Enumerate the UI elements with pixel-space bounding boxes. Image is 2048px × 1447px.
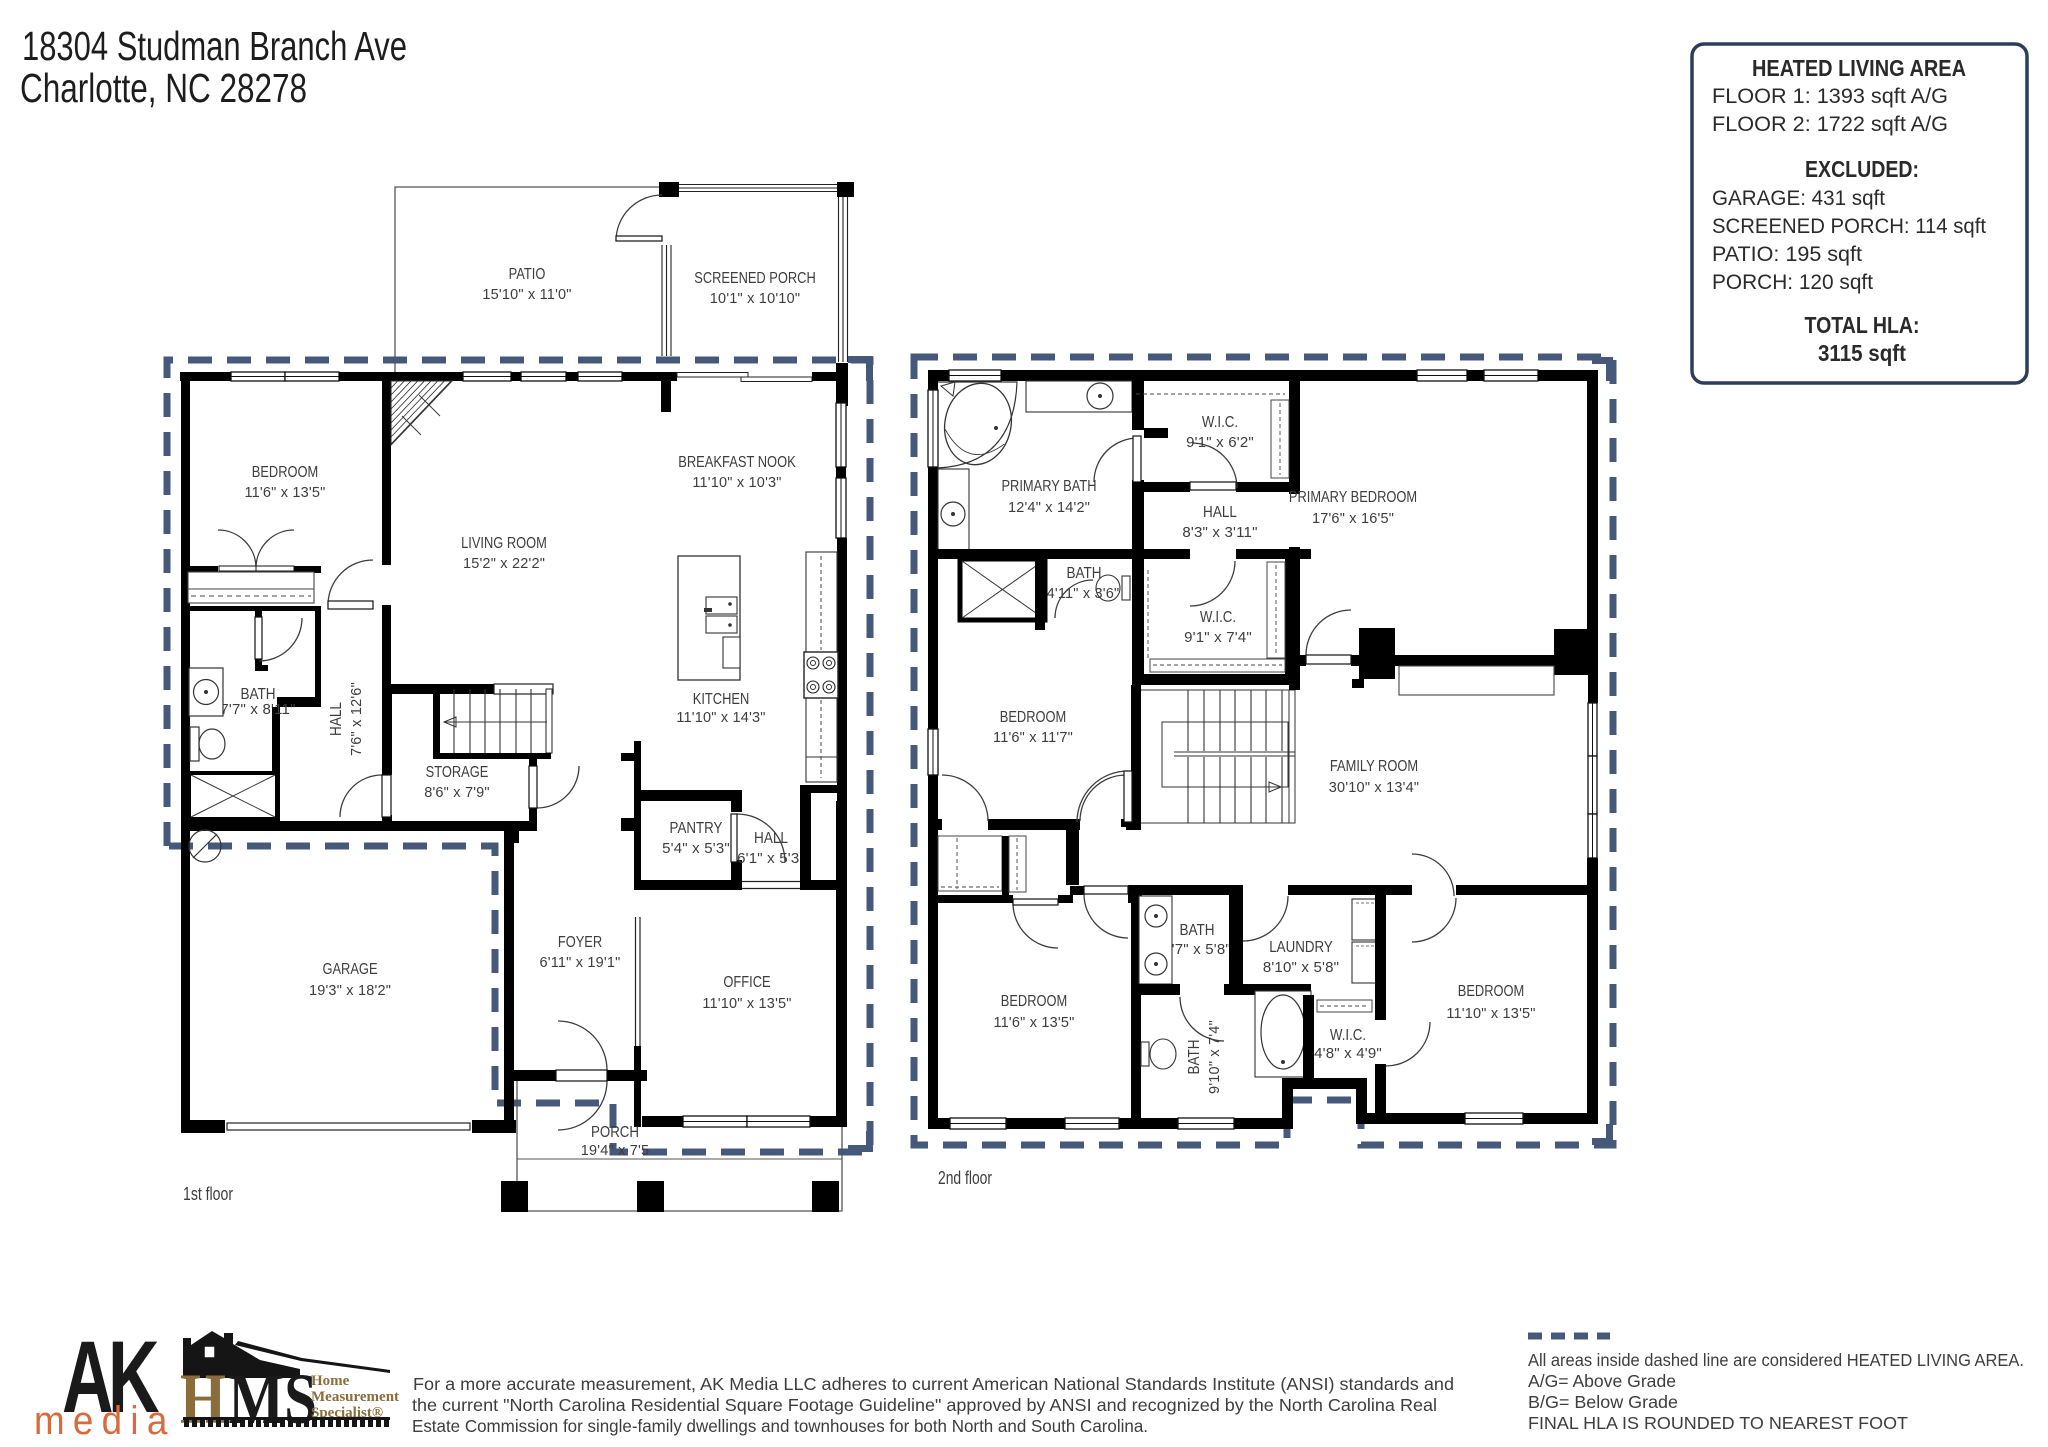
svg-text:Home: Home (311, 1373, 350, 1389)
svg-text:11'10" x 14'3": 11'10" x 14'3" (676, 710, 765, 726)
svg-text:All areas inside dashed line a: All areas inside dashed line are conside… (1528, 1350, 2024, 1370)
svg-text:W.I.C.: W.I.C. (1202, 414, 1238, 431)
svg-text:4'8" x 4'9": 4'8" x 4'9" (1314, 1045, 1382, 1062)
svg-text:HALL: HALL (1203, 504, 1237, 521)
svg-text:BATH: BATH (1179, 922, 1214, 939)
svg-text:9'10" x 7'4": 9'10" x 7'4" (1207, 1020, 1223, 1094)
svg-text:PORCH: PORCH (591, 1124, 639, 1141)
svg-text:SCREENED PORCH: SCREENED PORCH (694, 270, 816, 287)
svg-text:FLOOR 1: 1393 sqft A/G: FLOOR 1: 1393 sqft A/G (1712, 84, 1948, 108)
svg-text:GARAGE: 431 sqft: GARAGE: 431 sqft (1712, 186, 1885, 210)
svg-text:7'7" x 8'11": 7'7" x 8'11" (220, 701, 295, 718)
svg-text:PATIO: PATIO (509, 266, 546, 283)
svg-text:15'10" x 11'0": 15'10" x 11'0" (482, 287, 571, 303)
svg-text:8'3" x 3'11": 8'3" x 3'11" (1182, 524, 1257, 541)
svg-text:3115 sqft: 3115 sqft (1818, 340, 1906, 366)
svg-text:KITCHEN: KITCHEN (693, 691, 750, 708)
svg-text:FAMILY ROOM: FAMILY ROOM (1330, 758, 1418, 775)
svg-text:19'3" x 18'2": 19'3" x 18'2" (309, 983, 391, 999)
svg-text:FINAL HLA IS ROUNDED TO NEARES: FINAL HLA IS ROUNDED TO NEAREST FOOT (1528, 1413, 1909, 1433)
svg-text:8'10" x 5'8": 8'10" x 5'8" (1263, 959, 1339, 976)
svg-text:11'6" x 13'5": 11'6" x 13'5" (244, 485, 325, 501)
svg-text:BREAKFAST NOOK: BREAKFAST NOOK (678, 454, 796, 471)
svg-text:W.I.C.: W.I.C. (1330, 1027, 1366, 1044)
svg-text:OFFICE: OFFICE (723, 974, 770, 991)
svg-text:BEDROOM: BEDROOM (1000, 709, 1067, 726)
svg-text:STORAGE: STORAGE (426, 764, 489, 781)
svg-text:PANTRY: PANTRY (670, 820, 723, 837)
svg-text:PRIMARY BEDROOM: PRIMARY BEDROOM (1289, 489, 1417, 506)
svg-text:9'1" x 7'4": 9'1" x 7'4" (1184, 629, 1252, 646)
svg-text:Measurement: Measurement (311, 1389, 399, 1405)
svg-text:EXCLUDED:: EXCLUDED: (1805, 156, 1919, 182)
svg-text:GARAGE: GARAGE (322, 961, 377, 978)
svg-text:HEATED LIVING AREA: HEATED LIVING AREA (1752, 55, 1966, 81)
svg-text:5'7" x 5'8": 5'7" x 5'8" (1163, 941, 1231, 958)
svg-text:11'6" x 13'5": 11'6" x 13'5" (993, 1015, 1074, 1031)
svg-text:TOTAL HLA:: TOTAL HLA: (1805, 312, 1920, 338)
svg-text:8'6" x 7'9": 8'6" x 7'9" (424, 785, 490, 801)
svg-text:For a more accurate measuremen: For a more accurate measurement, AK Medi… (413, 1374, 1454, 1394)
svg-text:2nd floor: 2nd floor (938, 1167, 992, 1188)
svg-text:B/G= Below Grade: B/G= Below Grade (1528, 1392, 1678, 1412)
svg-text:media: media (34, 1399, 176, 1444)
svg-text:H: H (180, 1360, 226, 1440)
svg-text:BEDROOM: BEDROOM (1458, 983, 1525, 1000)
svg-text:BEDROOM: BEDROOM (1001, 993, 1068, 1010)
svg-text:11'10" x 10'3": 11'10" x 10'3" (692, 475, 781, 491)
svg-text:PORCH: 120 sqft: PORCH: 120 sqft (1712, 270, 1873, 294)
svg-text:18304 Studman Branch Ave: 18304 Studman Branch Ave (22, 23, 407, 69)
svg-text:LIVING ROOM: LIVING ROOM (461, 535, 547, 552)
svg-text:BATH: BATH (1186, 1039, 1203, 1074)
svg-text:15'2" x 22'2": 15'2" x 22'2" (463, 556, 545, 572)
svg-text:the current "North Carolina Re: the current "North Carolina Residential … (412, 1395, 1437, 1415)
svg-text:5'4" x 5'3": 5'4" x 5'3" (662, 840, 730, 857)
svg-text:A/G= Above Grade: A/G= Above Grade (1528, 1371, 1676, 1391)
svg-text:17'6" x 16'5": 17'6" x 16'5" (1312, 511, 1394, 527)
svg-text:BATH: BATH (1066, 565, 1101, 582)
svg-text:LAUNDRY: LAUNDRY (1269, 939, 1333, 956)
svg-text:19'4" x 7'5: 19'4" x 7'5 (581, 1143, 650, 1159)
svg-text:MS: MS (228, 1360, 317, 1440)
svg-text:7'6" x 12'6": 7'6" x 12'6" (349, 682, 365, 756)
svg-text:BEDROOM: BEDROOM (252, 464, 319, 481)
svg-text:11'10" x 13'5": 11'10" x 13'5" (702, 996, 791, 1012)
svg-text:FLOOR 2: 1722 sqft A/G: FLOOR 2: 1722 sqft A/G (1712, 112, 1948, 136)
svg-text:9'1" x 6'2": 9'1" x 6'2" (1186, 434, 1254, 451)
svg-text:Charlotte, NC 28278: Charlotte, NC 28278 (20, 65, 307, 111)
svg-text:HALL: HALL (328, 702, 345, 736)
svg-text:11'6" x 11'7": 11'6" x 11'7" (993, 730, 1073, 746)
svg-text:11'10" x 13'5": 11'10" x 13'5" (1446, 1006, 1535, 1022)
svg-text:6'1" x 5'3": 6'1" x 5'3" (737, 850, 805, 867)
svg-text:HALL: HALL (754, 830, 788, 847)
svg-text:SCREENED PORCH: 114 sqft: SCREENED PORCH: 114 sqft (1712, 214, 1986, 238)
svg-text:30'10" x 13'4": 30'10" x 13'4" (1329, 780, 1419, 796)
svg-text:W.I.C.: W.I.C. (1200, 609, 1236, 626)
svg-text:10'1" x 10'10": 10'1" x 10'10" (710, 291, 800, 307)
svg-text:6'11" x 19'1": 6'11" x 19'1" (539, 955, 620, 971)
svg-text:12'4" x 14'2": 12'4" x 14'2" (1008, 500, 1090, 516)
svg-text:FOYER: FOYER (558, 934, 602, 951)
svg-text:Estate Commission for single-f: Estate Commission for single-family dwel… (412, 1416, 1148, 1436)
svg-text:PATIO: 195 sqft: PATIO: 195 sqft (1712, 242, 1862, 266)
svg-text:4'11" x 3'6": 4'11" x 3'6" (1047, 586, 1120, 602)
svg-text:1st floor: 1st floor (183, 1183, 233, 1204)
svg-text:PRIMARY BATH: PRIMARY BATH (1001, 478, 1096, 495)
